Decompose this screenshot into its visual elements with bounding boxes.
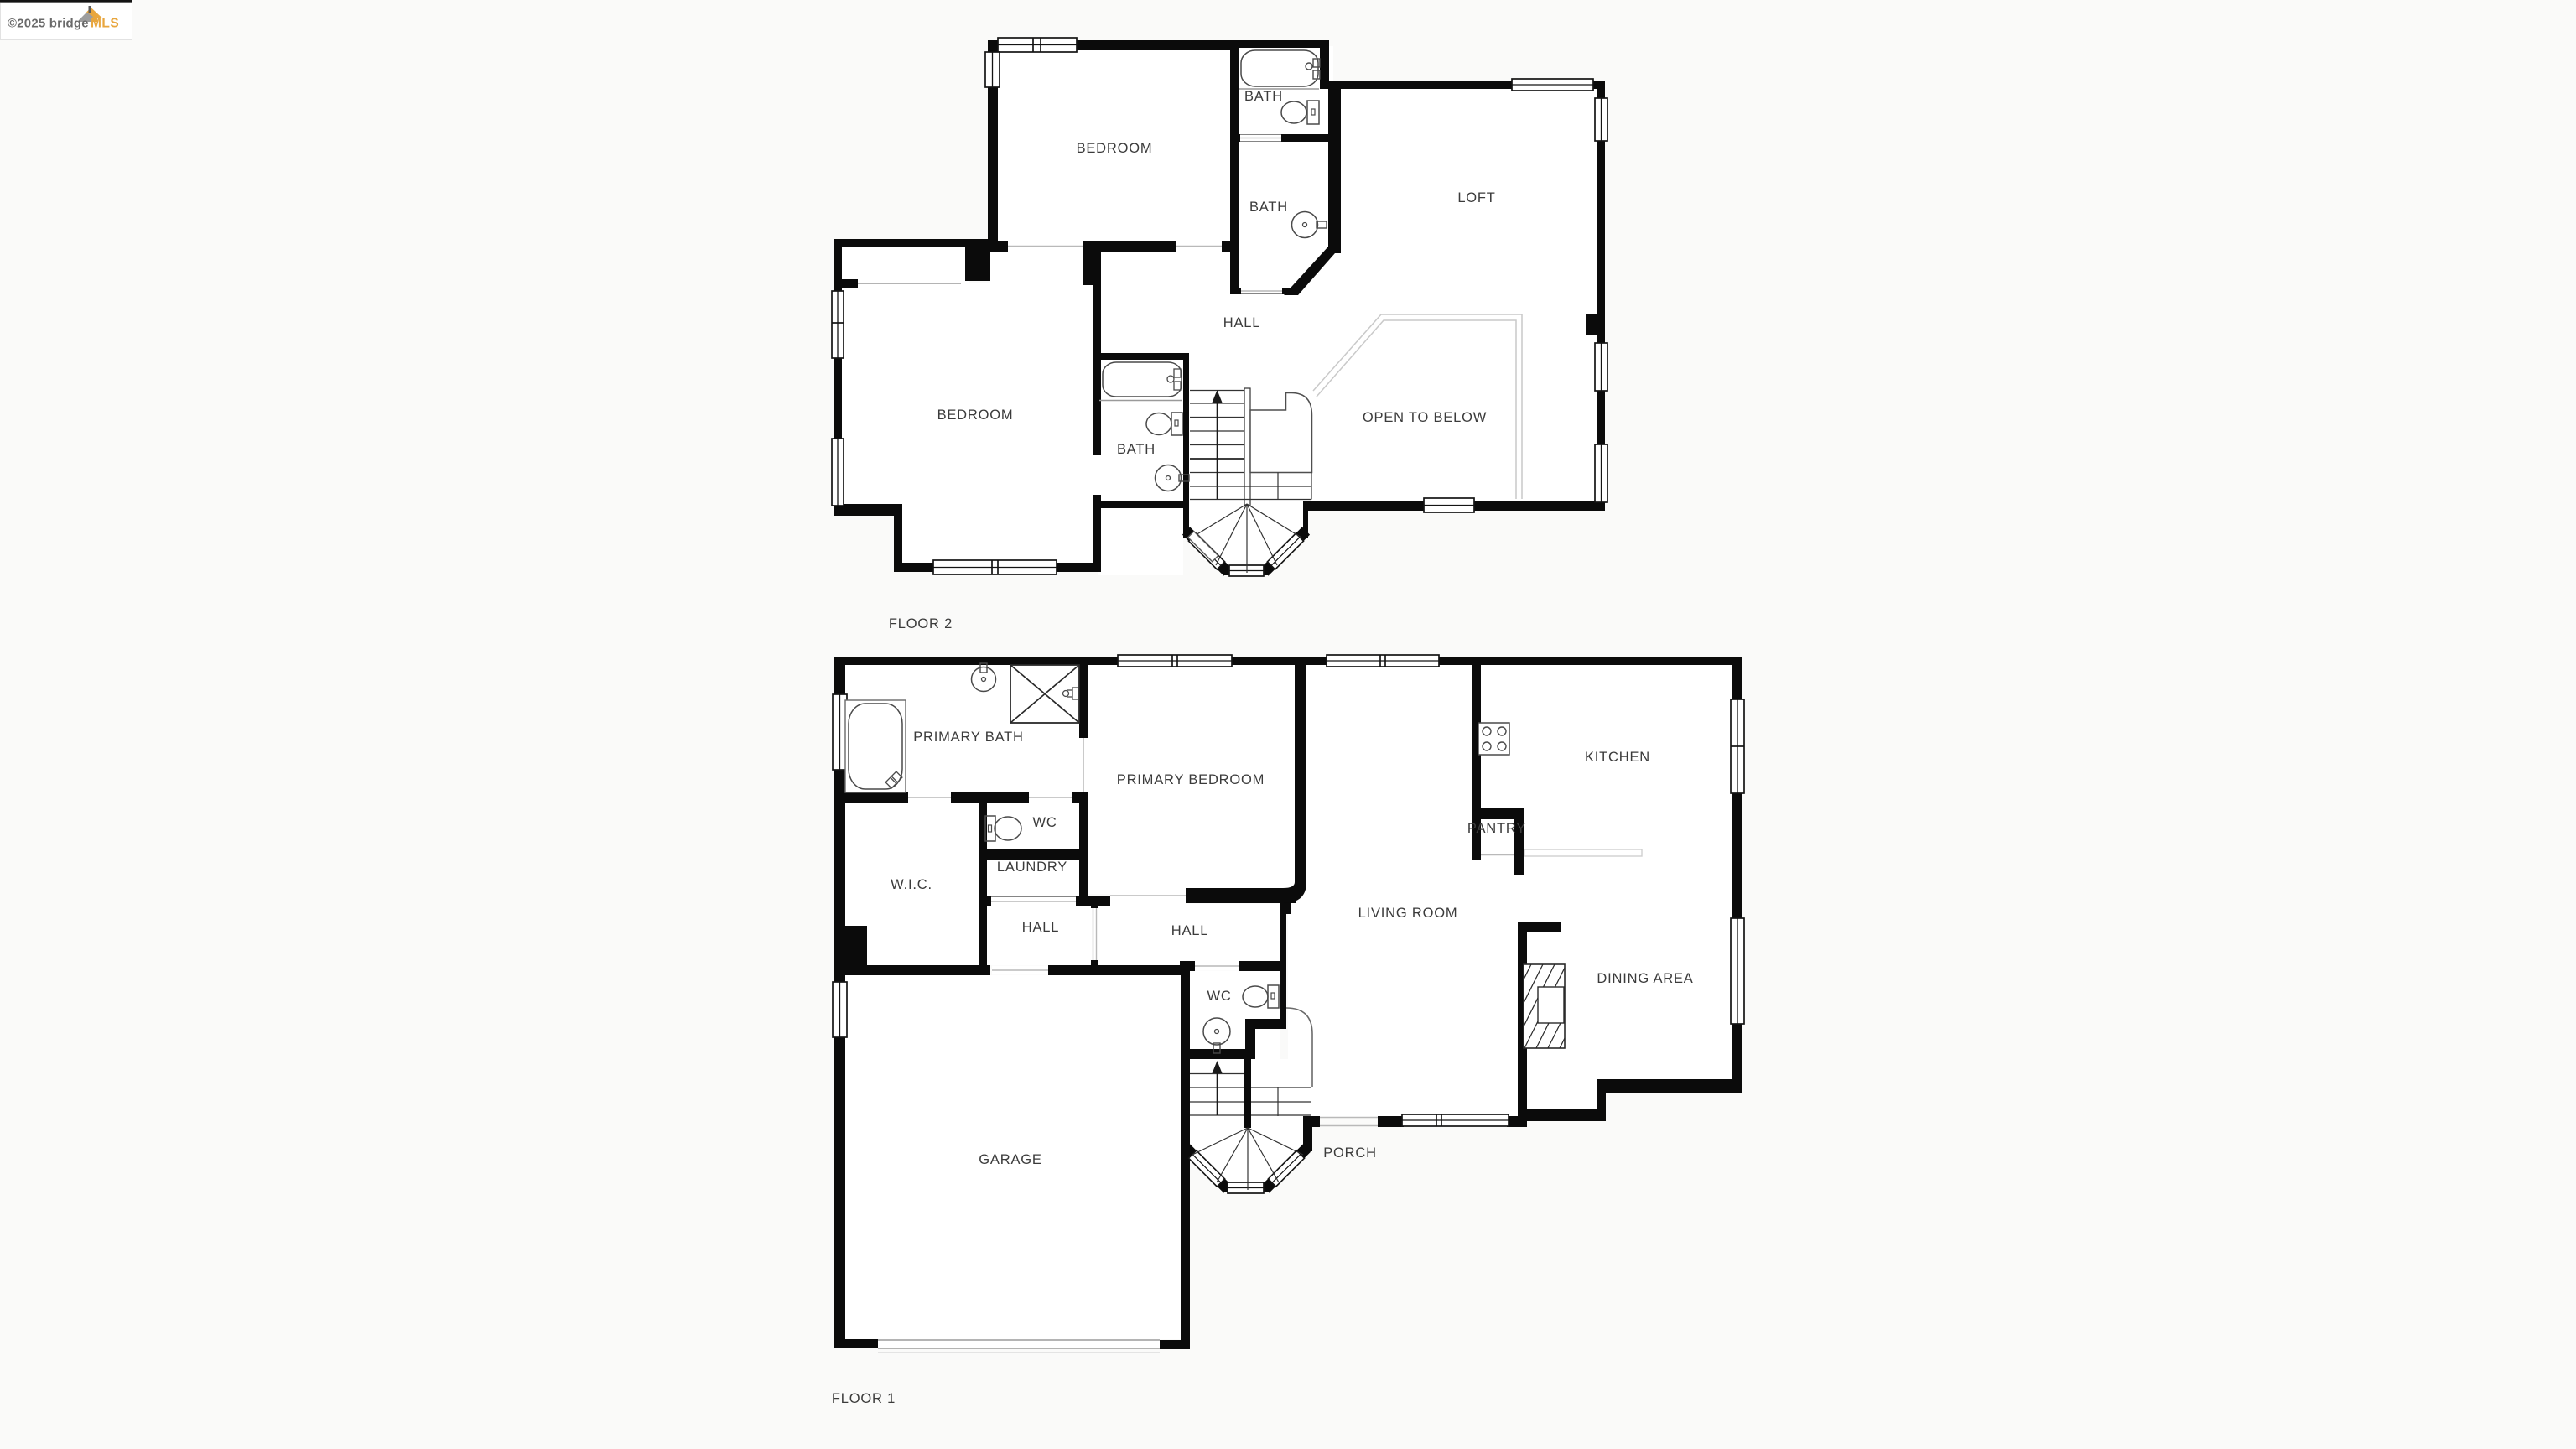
svg-text:WC: WC bbox=[1207, 989, 1231, 1004]
svg-text:HALL: HALL bbox=[1171, 923, 1208, 938]
svg-text:BEDROOM: BEDROOM bbox=[1077, 141, 1153, 156]
svg-text:PRIMARY BEDROOM: PRIMARY BEDROOM bbox=[1117, 772, 1265, 787]
svg-text:LAUNDRY: LAUNDRY bbox=[997, 860, 1067, 875]
svg-text:WC: WC bbox=[1032, 815, 1057, 830]
svg-text:PRIMARY BATH: PRIMARY BATH bbox=[913, 730, 1024, 745]
svg-text:PANTRY: PANTRY bbox=[1467, 821, 1526, 836]
svg-text:BEDROOM: BEDROOM bbox=[937, 408, 1014, 423]
svg-text:PORCH: PORCH bbox=[1323, 1145, 1377, 1161]
svg-text:FLOOR 2: FLOOR 2 bbox=[889, 616, 953, 631]
svg-text:OPEN TO BELOW: OPEN TO BELOW bbox=[1363, 410, 1487, 425]
svg-text:W.I.C.: W.I.C. bbox=[891, 877, 932, 892]
svg-text:LOFT: LOFT bbox=[1457, 190, 1495, 205]
svg-text:KITCHEN: KITCHEN bbox=[1585, 750, 1650, 765]
svg-text:HALL: HALL bbox=[1022, 920, 1059, 935]
svg-text:FLOOR 1: FLOOR 1 bbox=[832, 1391, 896, 1406]
svg-text:BATH: BATH bbox=[1117, 442, 1156, 457]
svg-text:BATH: BATH bbox=[1244, 89, 1283, 104]
svg-text:DINING AREA: DINING AREA bbox=[1597, 971, 1693, 986]
svg-text:HALL: HALL bbox=[1223, 315, 1260, 330]
svg-text:GARAGE: GARAGE bbox=[979, 1152, 1041, 1167]
svg-text:BATH: BATH bbox=[1249, 200, 1288, 215]
svg-text:LIVING ROOM: LIVING ROOM bbox=[1358, 906, 1458, 921]
svg-text:©2025 bridge: ©2025 bridge bbox=[8, 17, 89, 31]
svg-text:MLS: MLS bbox=[91, 17, 119, 31]
